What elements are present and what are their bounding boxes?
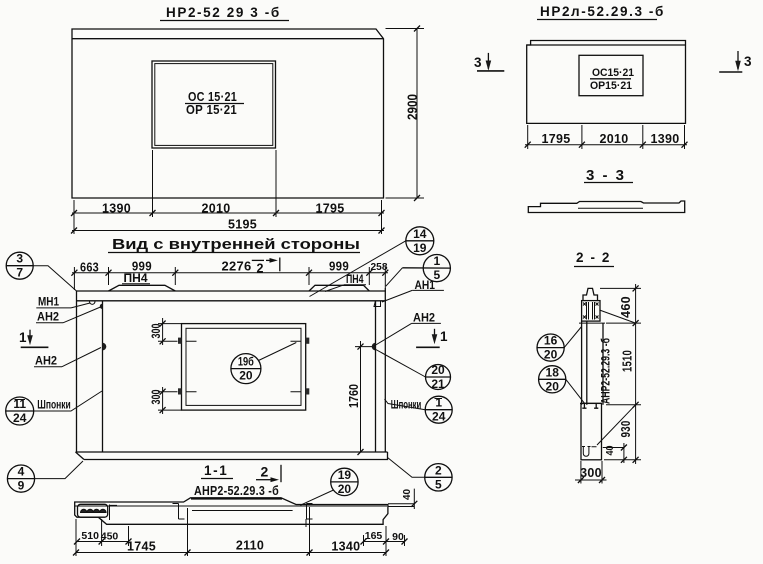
svg-text:40: 40 [604,445,616,455]
svg-text:3: 3 [16,252,23,266]
svg-text:21: 21 [431,377,445,391]
svg-text:1: 1 [440,329,449,344]
svg-text:1: 1 [19,330,28,345]
svg-text:2276: 2276 [222,260,252,274]
svg-text:20: 20 [338,482,352,496]
svg-text:20: 20 [239,369,253,383]
svg-text:510: 510 [81,530,99,542]
svg-text:ПН4: ПН4 [124,271,148,285]
svg-text:2110: 2110 [236,539,264,553]
svg-text:1340: 1340 [331,540,360,554]
svg-text:3: 3 [744,54,753,69]
svg-text:1510: 1510 [621,350,635,372]
svg-text:Шпонки: Шпонки [37,398,71,412]
svg-text:19: 19 [338,468,352,482]
svg-text:19: 19 [413,241,427,255]
svg-text:ОР15·21: ОР15·21 [590,80,632,92]
svg-text:5195: 5195 [228,218,257,232]
svg-text:20: 20 [431,363,445,377]
svg-text:1: 1 [433,254,440,268]
svg-text:1390: 1390 [102,202,131,216]
svg-text:19б: 19б [238,355,254,369]
svg-text:24: 24 [13,411,27,425]
svg-text:Вид с внутренней стороны: Вид с внутренней стороны [112,236,360,253]
svg-text:2: 2 [435,463,442,477]
svg-text:1795: 1795 [315,202,344,216]
svg-text:АН2: АН2 [413,311,435,325]
svg-text:2010: 2010 [201,202,230,216]
svg-text:АНР2-52.29.3 -б: АНР2-52.29.3 -б [599,338,613,404]
svg-text:ОС 15·21: ОС 15·21 [188,90,237,104]
svg-text:14: 14 [413,227,427,241]
svg-text:ОР 15·21: ОР 15·21 [186,103,237,117]
svg-text:1795: 1795 [541,132,570,146]
svg-text:165: 165 [365,530,383,542]
svg-text:20: 20 [546,379,560,393]
svg-text:2900: 2900 [405,94,420,120]
svg-text:450: 450 [101,531,119,543]
svg-text:АН2: АН2 [37,310,59,324]
svg-text:1390: 1390 [650,132,679,146]
svg-text:20: 20 [544,348,558,362]
svg-text:4: 4 [18,465,25,479]
svg-text:1745: 1745 [127,540,156,554]
svg-text:2 - 2: 2 - 2 [576,250,611,265]
svg-text:18: 18 [546,365,560,379]
svg-text:МН1: МН1 [38,295,59,309]
svg-text:460: 460 [619,296,633,318]
svg-text:АН2: АН2 [35,354,57,368]
svg-text:5: 5 [435,477,442,491]
svg-text:ОС15·21: ОС15·21 [592,67,634,79]
svg-text:300: 300 [580,466,602,480]
svg-text:3 - 3: 3 - 3 [586,167,626,184]
svg-text:НР2-52 29 3 -б: НР2-52 29 3 -б [166,5,281,20]
svg-text:16: 16 [544,334,558,348]
svg-text:1760: 1760 [346,384,361,408]
svg-text:7: 7 [16,266,23,280]
svg-text:90: 90 [392,531,404,543]
svg-text:930: 930 [619,421,633,438]
svg-text:2: 2 [261,464,269,480]
svg-text:АНР2-52.29.3 -б: АНР2-52.29.3 -б [194,484,279,498]
svg-text:НР2л-52.29.3 -б: НР2л-52.29.3 -б [540,4,665,19]
svg-text:9: 9 [18,479,25,493]
svg-text:3: 3 [474,55,483,70]
svg-text:300: 300 [151,324,163,339]
svg-text:300: 300 [151,390,163,405]
svg-text:1-1: 1-1 [204,463,228,478]
svg-text:2: 2 [257,262,264,276]
svg-text:24: 24 [432,410,446,424]
svg-text:258: 258 [371,261,388,273]
svg-text:1: 1 [435,396,442,410]
svg-text:2010: 2010 [599,132,628,146]
svg-text:663: 663 [80,261,99,275]
svg-text:40: 40 [401,489,413,500]
